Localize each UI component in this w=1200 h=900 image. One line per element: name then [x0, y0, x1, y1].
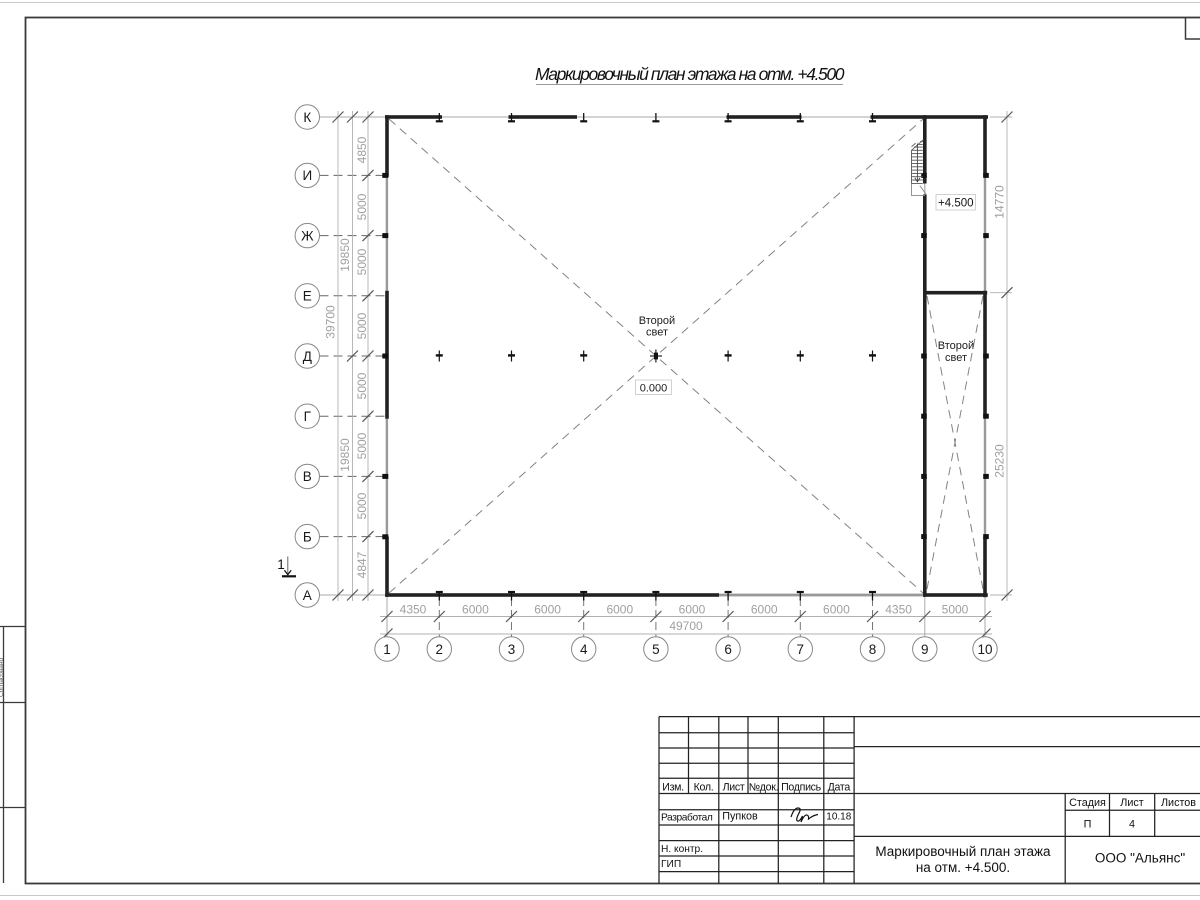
svg-text:Согласовано: Согласовано: [0, 658, 5, 697]
svg-text:на отм. +4.500.: на отм. +4.500.: [916, 860, 1010, 875]
svg-text:19850: 19850: [338, 238, 352, 272]
svg-text:К: К: [303, 110, 311, 125]
svg-text:14770: 14770: [993, 185, 1007, 219]
svg-text:10.18: 10.18: [826, 812, 851, 823]
svg-text:4350: 4350: [400, 602, 427, 616]
svg-text:5000: 5000: [355, 492, 369, 519]
svg-text:Подпись: Подпись: [781, 782, 822, 794]
svg-text:0.000: 0.000: [640, 382, 668, 394]
svg-text:5000: 5000: [355, 372, 369, 399]
svg-text:Второй: Второй: [938, 340, 974, 352]
svg-text:6: 6: [724, 642, 732, 657]
svg-text:5000: 5000: [355, 193, 369, 220]
svg-text:Лист: Лист: [1120, 797, 1144, 809]
svg-text:Листов: Листов: [1161, 797, 1196, 809]
svg-text:6000: 6000: [606, 602, 633, 616]
svg-text:4350: 4350: [885, 602, 912, 616]
svg-text:4: 4: [1129, 819, 1135, 831]
svg-text:6000: 6000: [534, 602, 561, 616]
svg-text:+4.500: +4.500: [938, 197, 974, 209]
svg-text:№док.: №док.: [749, 782, 779, 794]
svg-text:5000: 5000: [942, 602, 969, 616]
svg-text:10: 10: [977, 642, 992, 657]
svg-text:3: 3: [508, 642, 516, 657]
svg-text:1: 1: [383, 642, 391, 657]
svg-text:5000: 5000: [355, 312, 369, 339]
svg-text:4847: 4847: [355, 551, 369, 578]
svg-text:свет: свет: [646, 327, 668, 339]
svg-text:Маркировочный план этажа на от: Маркировочный план этажа на отм. +4.500: [535, 64, 845, 84]
svg-text:4: 4: [580, 642, 588, 657]
svg-text:Второй: Второй: [639, 315, 675, 327]
svg-text:6000: 6000: [679, 602, 706, 616]
svg-text:Н. контр.: Н. контр.: [661, 844, 703, 855]
svg-text:5000: 5000: [355, 432, 369, 459]
svg-text:Г: Г: [304, 409, 312, 424]
svg-text:9: 9: [921, 642, 929, 657]
svg-text:Лист: Лист: [723, 782, 745, 794]
svg-text:Разработал: Разработал: [661, 812, 713, 824]
svg-text:Д: Д: [303, 349, 312, 364]
svg-text:4850: 4850: [355, 136, 369, 163]
svg-text:Стадия: Стадия: [1069, 797, 1106, 809]
svg-text:1: 1: [277, 557, 285, 572]
svg-text:49700: 49700: [669, 619, 703, 633]
svg-text:Маркировочный план этажа: Маркировочный план этажа: [875, 844, 1051, 859]
svg-text:Ж: Ж: [301, 228, 314, 243]
svg-text:7: 7: [797, 642, 805, 657]
svg-text:19850: 19850: [338, 438, 352, 472]
svg-text:25230: 25230: [993, 444, 1007, 478]
svg-text:39700: 39700: [324, 305, 338, 339]
svg-text:ГИП: ГИП: [661, 859, 681, 870]
svg-text:6000: 6000: [462, 602, 489, 616]
svg-text:Изм.: Изм.: [662, 782, 684, 794]
svg-text:В: В: [303, 469, 312, 484]
svg-text:И: И: [302, 168, 312, 183]
svg-text:5000: 5000: [355, 248, 369, 275]
svg-text:2: 2: [436, 642, 444, 657]
svg-text:свет: свет: [945, 352, 967, 364]
svg-text:Дата: Дата: [828, 782, 851, 794]
svg-text:8: 8: [869, 642, 877, 657]
svg-text:П: П: [1084, 819, 1092, 831]
svg-text:А: А: [303, 588, 312, 603]
svg-text:Кол.: Кол.: [694, 782, 714, 794]
svg-text:5: 5: [652, 642, 660, 657]
svg-text:Е: Е: [303, 289, 312, 304]
svg-text:ООО "Альянс": ООО "Альянс": [1095, 851, 1185, 866]
svg-text:6000: 6000: [751, 602, 778, 616]
svg-text:6000: 6000: [823, 602, 850, 616]
svg-text:Пупков: Пупков: [722, 811, 758, 823]
svg-text:Б: Б: [303, 529, 312, 544]
